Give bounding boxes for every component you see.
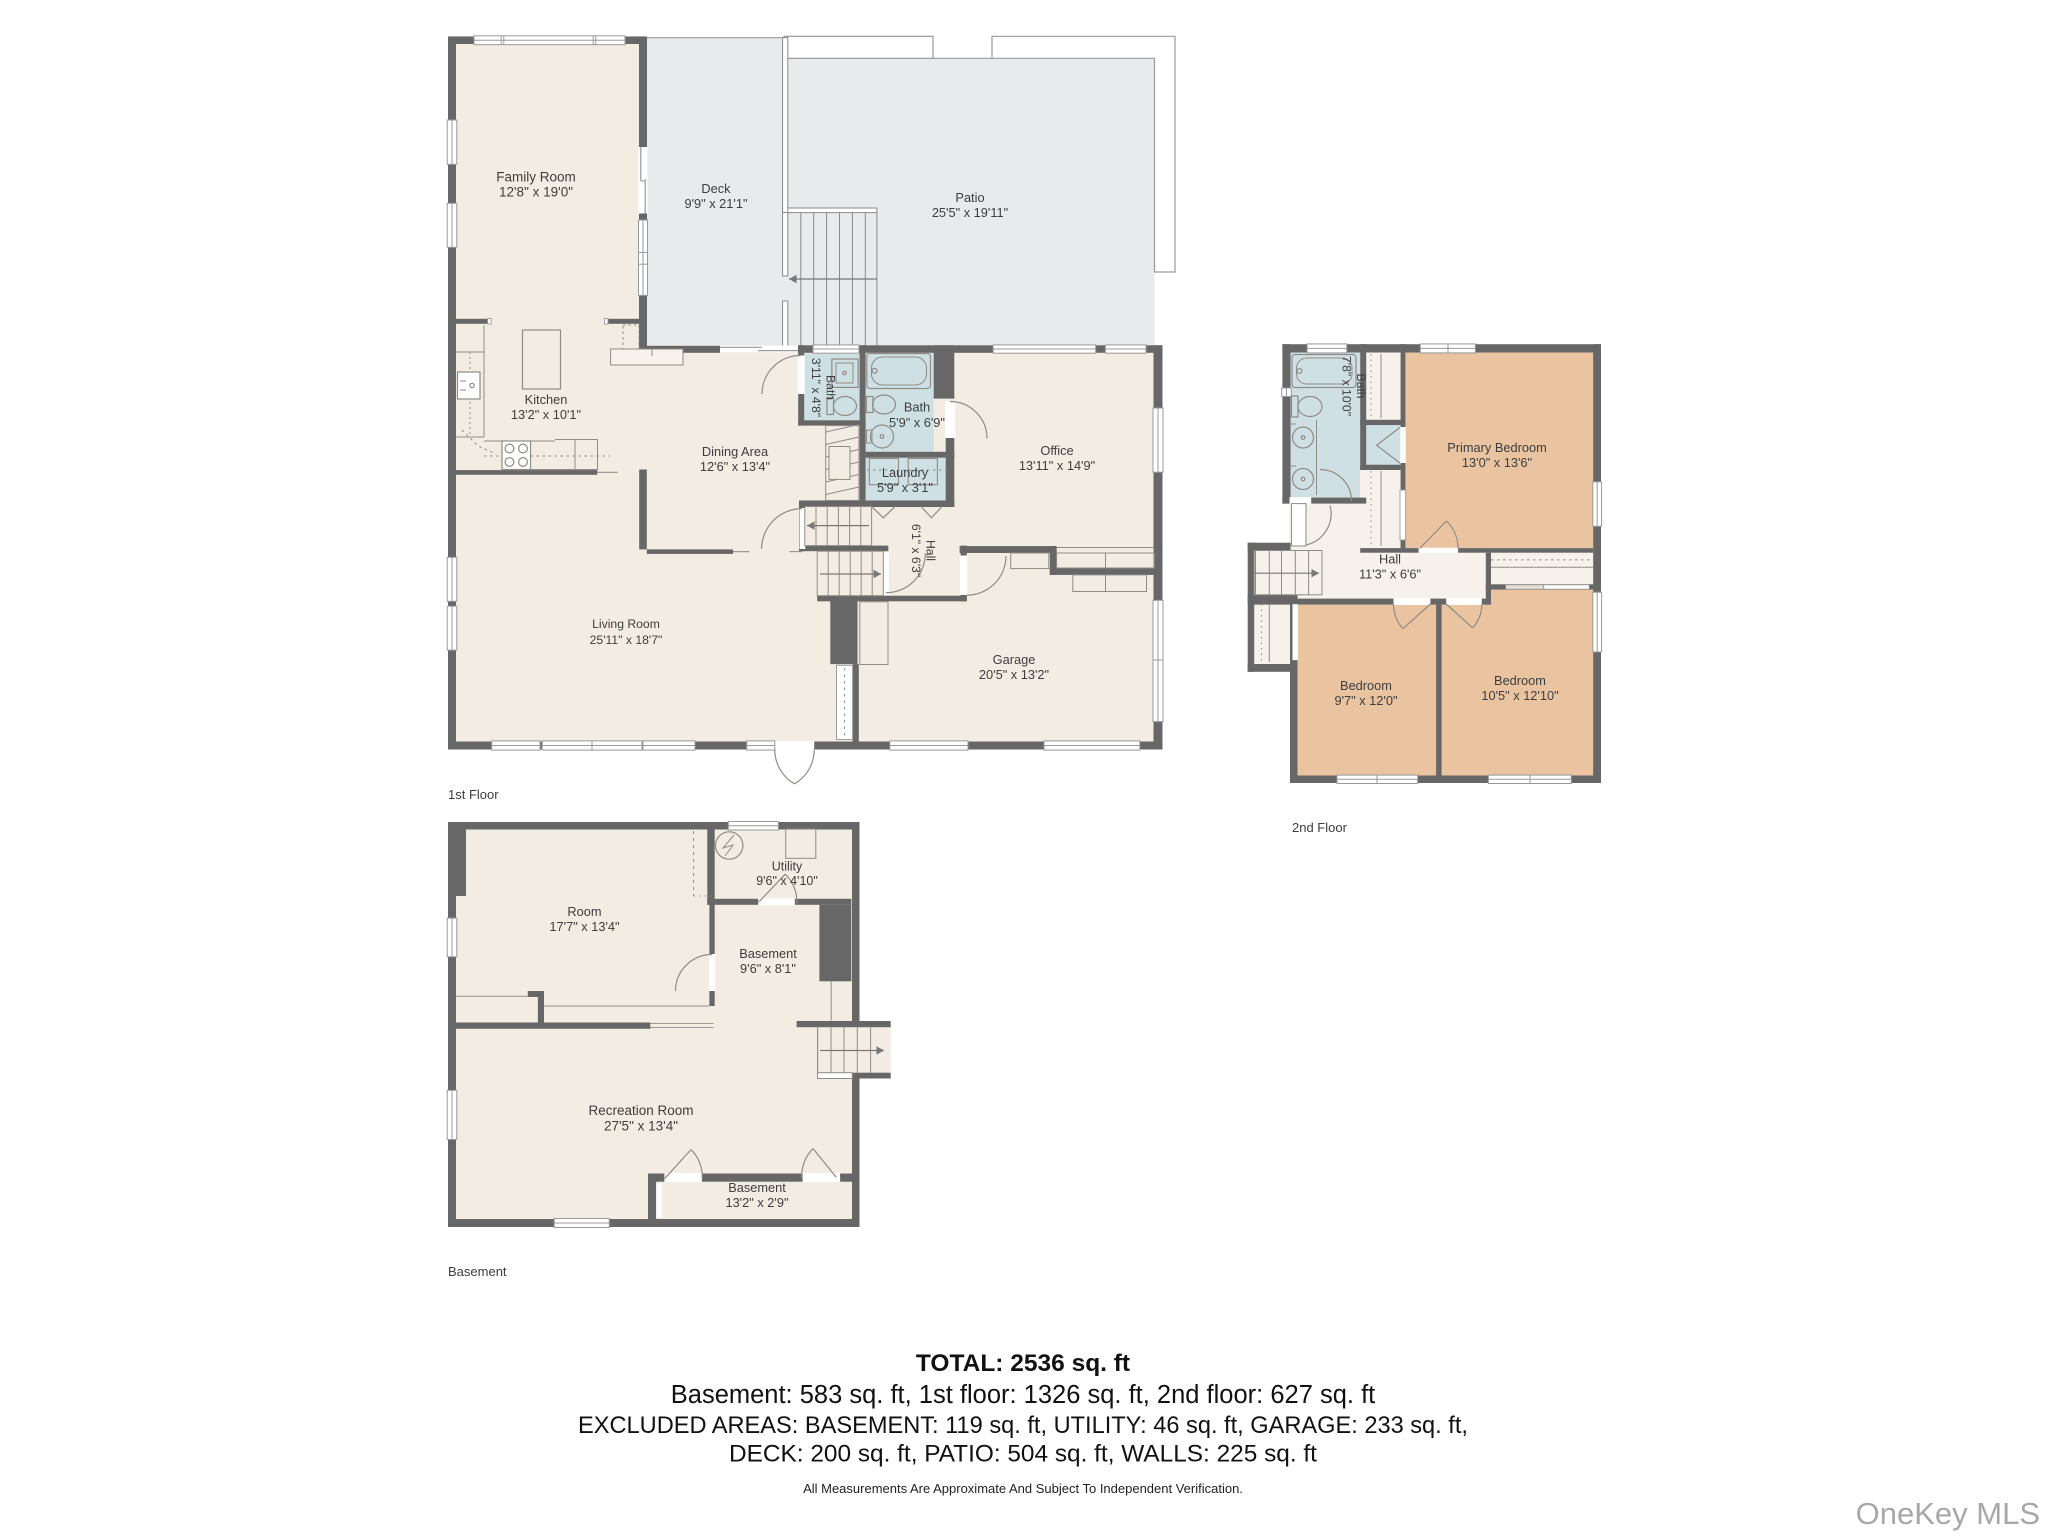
svg-text:DECK: 200 sq. ft, PATIO: 504 s: DECK: 200 sq. ft, PATIO: 504 sq. ft, WAL… [729,1441,1317,1468]
svg-text:Primary Bedroom13'0" x 13'6": Primary Bedroom13'0" x 13'6" [1447,440,1547,470]
svg-text:Dining Area12'6" x 13'4": Dining Area12'6" x 13'4" [700,444,770,474]
svg-text:Recreation Room27'5" x 13'4": Recreation Room27'5" x 13'4" [588,1103,693,1134]
svg-text:Laundry5'9" x 3'1": Laundry5'9" x 3'1" [877,465,933,495]
svg-text:1st Floor: 1st Floor [448,787,499,802]
svg-text:TOTAL: 2536 sq. ft: TOTAL: 2536 sq. ft [916,1350,1130,1377]
svg-text:EXCLUDED AREAS: BASEMENT: 119: EXCLUDED AREAS: BASEMENT: 119 sq. ft, UT… [578,1413,1468,1439]
svg-text:Basement: 583 sq. ft, 1st floo: Basement: 583 sq. ft, 1st floor: 1326 sq… [671,1381,1376,1409]
svg-text:Basement9'6" x 8'1": Basement9'6" x 8'1" [739,946,797,976]
svg-text:2nd Floor: 2nd Floor [1292,820,1348,835]
svg-text:OneKey MLS: OneKey MLS [1856,1496,2040,1531]
svg-text:Living Room25'11" x 18'7": Living Room25'11" x 18'7" [590,617,663,647]
svg-text:All Measurements Are Approxima: All Measurements Are Approximate And Sub… [803,1481,1243,1496]
svg-text:Basement: Basement [448,1264,507,1279]
svg-text:Basement13'2" x 2'9": Basement13'2" x 2'9" [725,1180,788,1210]
svg-text:Bedroom9'7" x 12'0": Bedroom9'7" x 12'0" [1334,678,1397,708]
svg-text:Family Room12'8" x 19'0": Family Room12'8" x 19'0" [496,170,576,200]
